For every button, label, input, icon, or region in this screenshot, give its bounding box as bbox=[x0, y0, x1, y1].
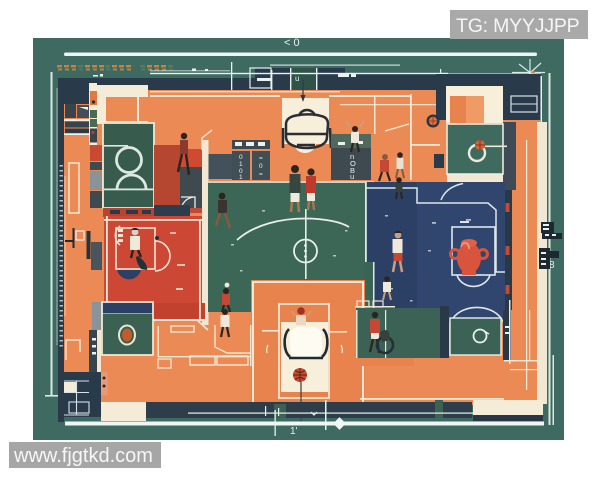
svg-text:u: u bbox=[295, 74, 299, 83]
svg-text:u: u bbox=[350, 172, 354, 181]
svg-text:TG: MYYJJPP: TG: MYYJJPP bbox=[456, 15, 579, 37]
svg-text:www.fjgtkd.com: www.fjgtkd.com bbox=[13, 445, 153, 467]
svg-text:1: 1 bbox=[239, 174, 243, 181]
svg-text:=: = bbox=[259, 171, 263, 178]
svg-text:< 0: < 0 bbox=[284, 37, 300, 49]
svg-text:0: 0 bbox=[239, 154, 243, 161]
svg-text:0: 0 bbox=[259, 163, 263, 170]
svg-text:=: = bbox=[259, 155, 263, 162]
svg-text:1: 1 bbox=[239, 161, 243, 168]
svg-text:1': 1' bbox=[290, 426, 298, 437]
